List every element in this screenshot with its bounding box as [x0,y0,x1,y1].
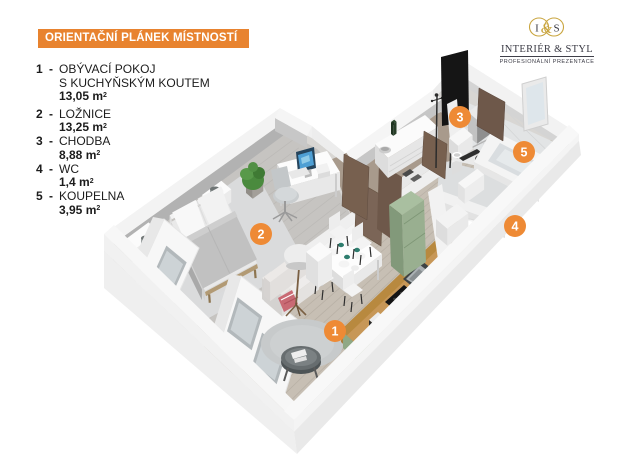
svg-text:S: S [553,23,559,35]
svg-text:2: 2 [258,228,265,242]
svg-text:5: 5 [521,146,528,160]
svg-text:1: 1 [332,325,339,339]
svg-text:4: 4 [512,220,519,234]
svg-text:3: 3 [457,111,464,125]
svg-text:I: I [535,23,539,35]
svg-text:&: & [541,21,553,37]
